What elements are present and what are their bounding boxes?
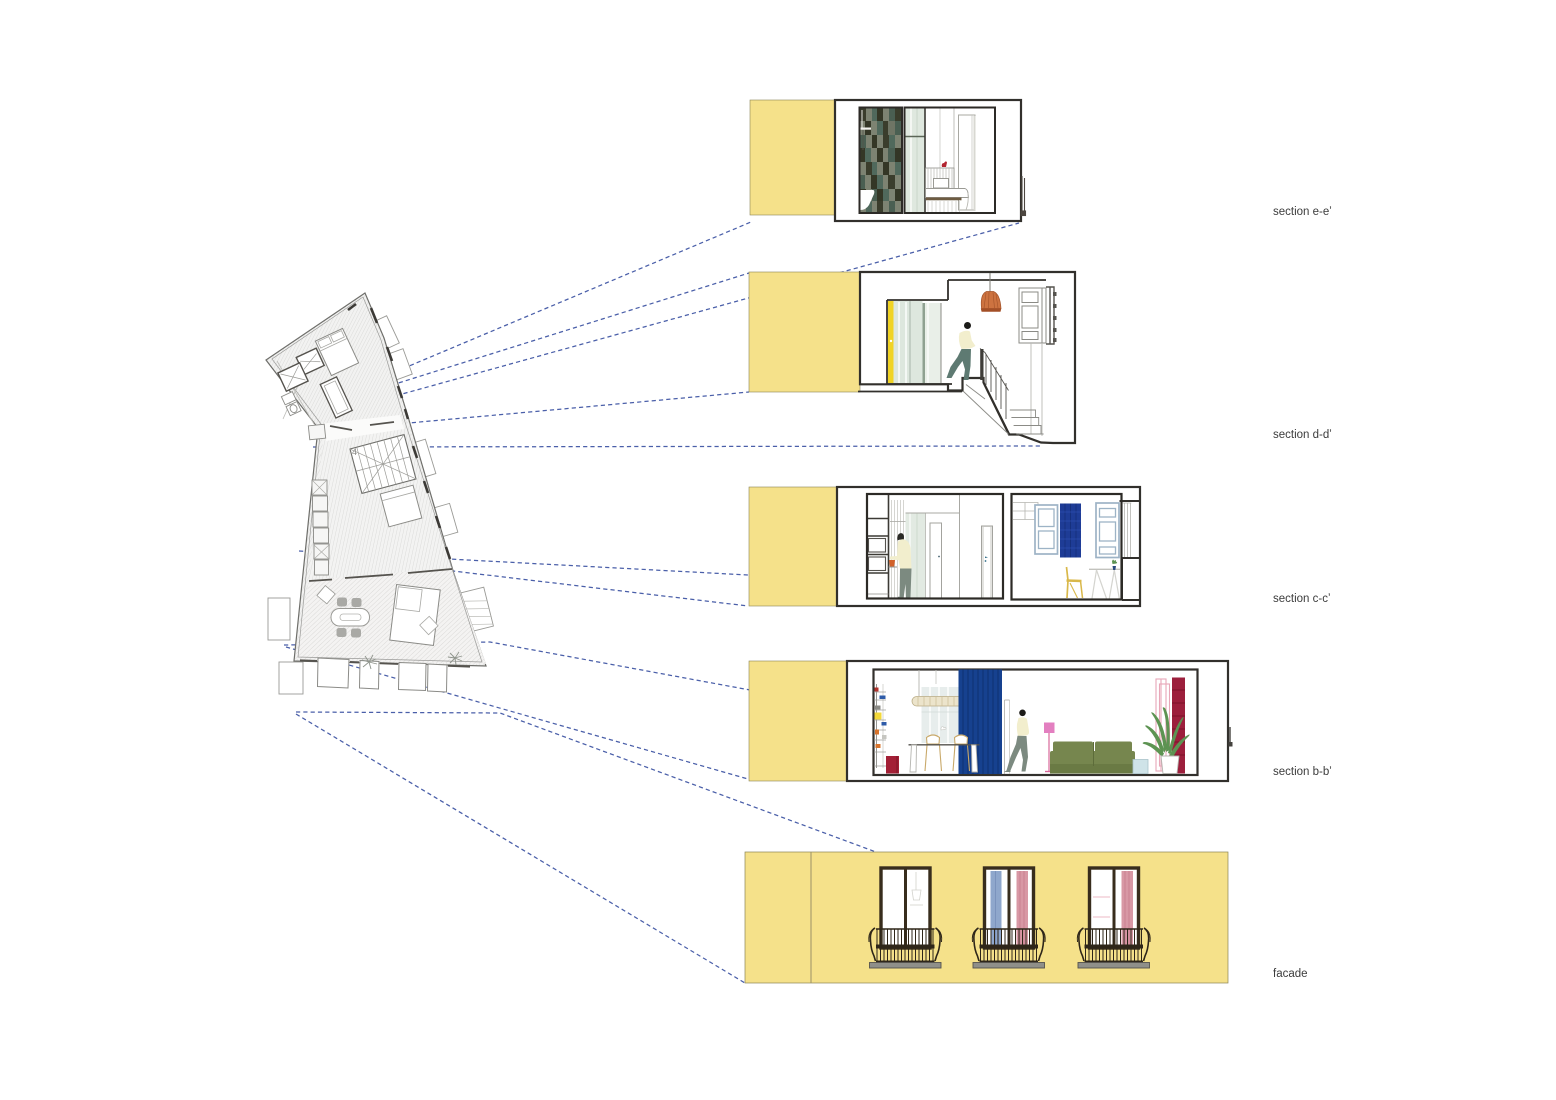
svg-text:4: 4 — [352, 447, 357, 457]
svg-text:section c-cʼ: section c-cʼ — [1273, 593, 1331, 605]
svg-text:section d-dʼ: section d-dʼ — [1273, 429, 1332, 441]
svg-text:facade: facade — [1273, 968, 1308, 980]
svg-text:section e-eʼ: section e-eʼ — [1273, 206, 1332, 218]
svg-text:section b-bʼ: section b-bʼ — [1273, 766, 1332, 778]
